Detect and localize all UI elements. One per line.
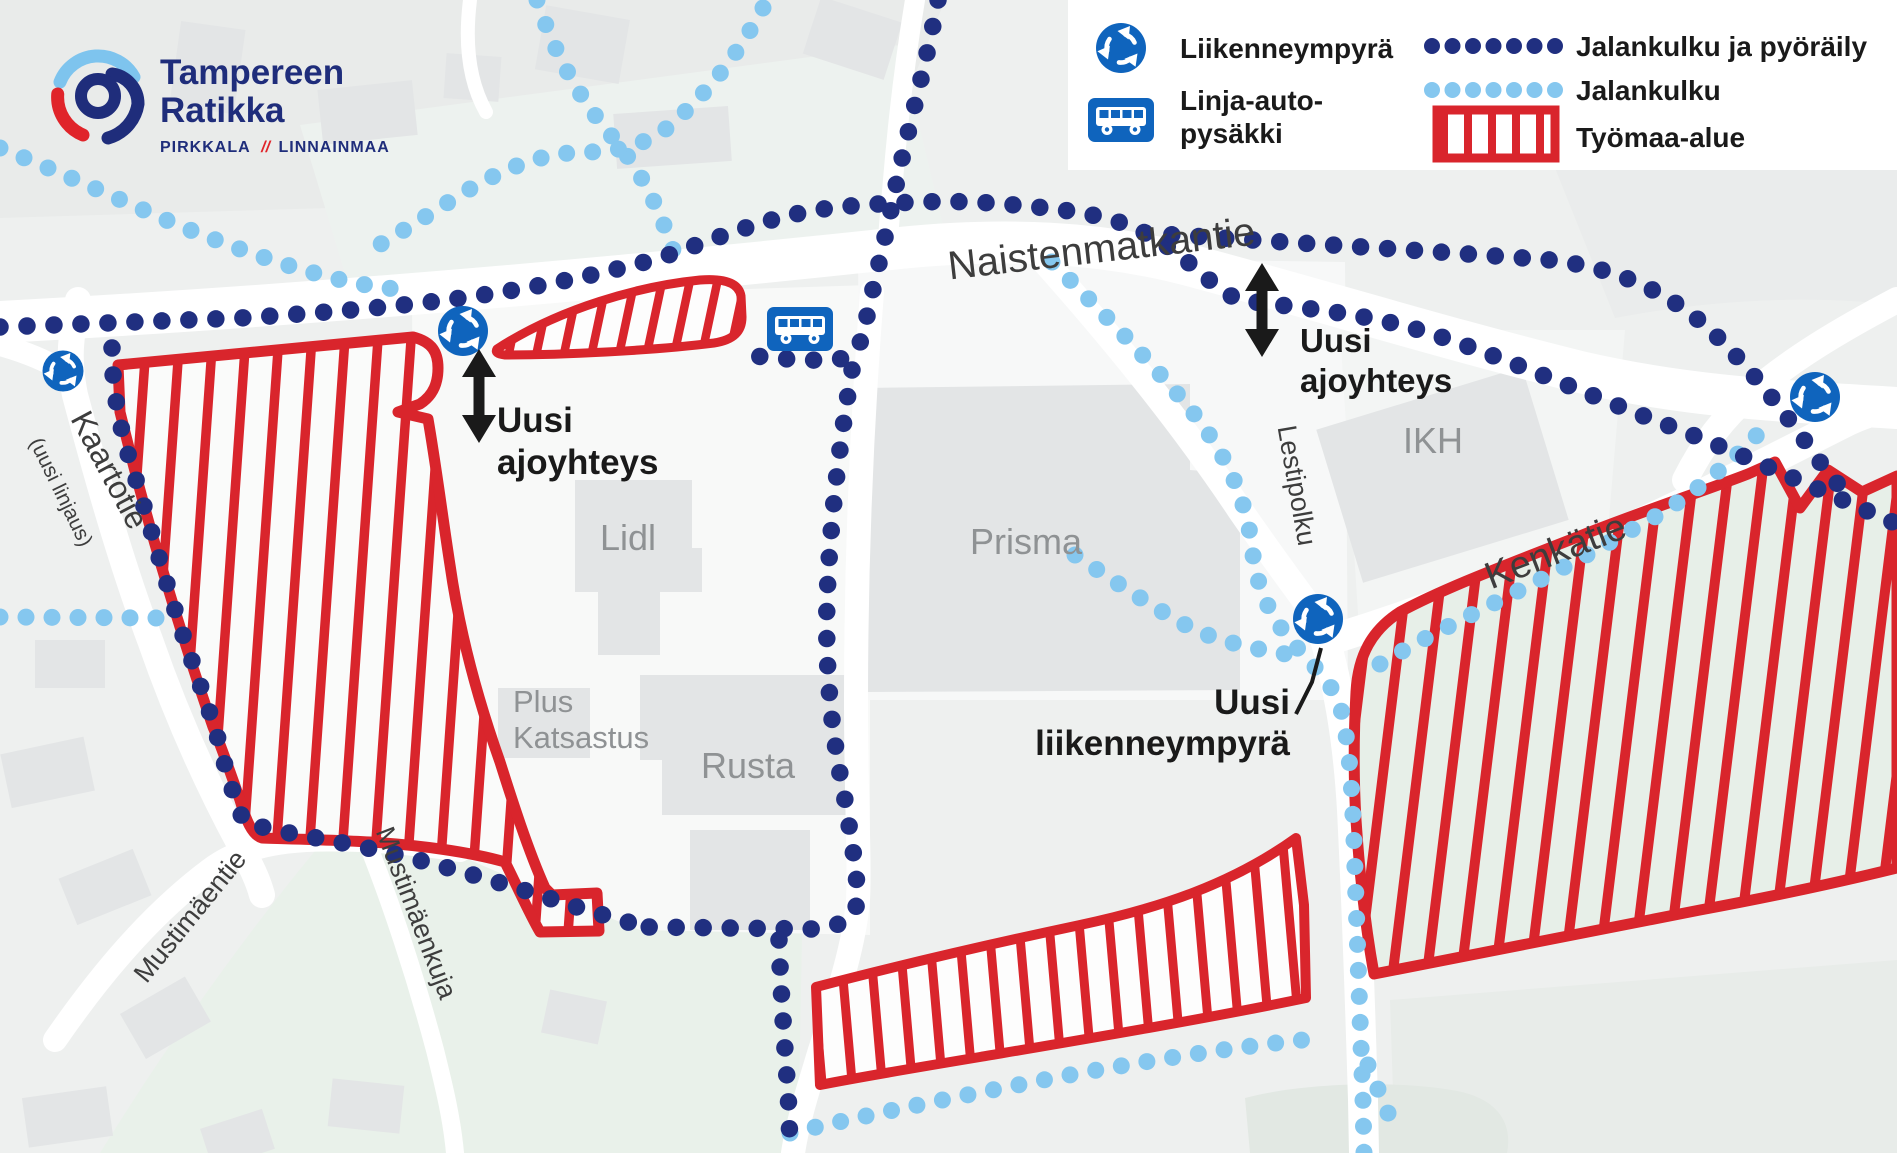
legend: Liikenneympyrä Linja-auto- pysäkki Jalan… [1068,0,1897,170]
annotation-new-roundabout-2: liikenneympyrä [1035,724,1290,763]
building-label-prisma: Prisma [970,521,1083,562]
logo-title-line1: Tampereen [160,53,344,92]
building-label-ikh: IKH [1403,420,1463,461]
logo-tagline-right: LINNAINMAA [278,139,389,156]
bus-stop-icon [767,307,833,351]
legend-walk-label: Jalankulku [1576,75,1721,106]
legend-work-area-swatch [1437,110,1555,158]
annotation-new-access-west-2: ajoyhteys [497,443,658,482]
map-canvas: Naistenmatkantie Kenkätie Kaartotie (uus… [0,0,1897,1153]
legend-bus-stop-icon [1088,98,1154,142]
annotation-new-access-east-1: Uusi [1300,322,1372,359]
legend-walk-cycle-label: Jalankulku ja pyöräily [1576,31,1867,62]
construction-traffic-map: Naistenmatkantie Kenkätie Kaartotie (uus… [0,0,1897,1153]
annotation-new-access-east-2: ajoyhteys [1300,362,1452,399]
annotation-new-roundabout-1: Uusi [1214,683,1290,722]
building-label-rusta: Rusta [701,745,796,786]
building-label-plus-katsastus-2: Katsastus [513,720,649,755]
logo-tagline-separator: // [260,139,271,156]
legend-work-area-label: Työmaa-alue [1576,122,1745,153]
logo-title-line2: Ratikka [160,91,285,130]
legend-bus-stop-label-1: Linja-auto- [1180,85,1323,116]
building-label-lidl: Lidl [600,517,656,558]
legend-roundabout-label: Liikenneympyrä [1180,33,1394,64]
building-label-plus-katsastus-1: Plus [513,684,573,719]
legend-bus-stop-label-2: pysäkki [1180,118,1283,149]
logo-tagline-left: PIRKKALA [160,139,251,156]
annotation-new-access-west-1: Uusi [497,401,573,440]
